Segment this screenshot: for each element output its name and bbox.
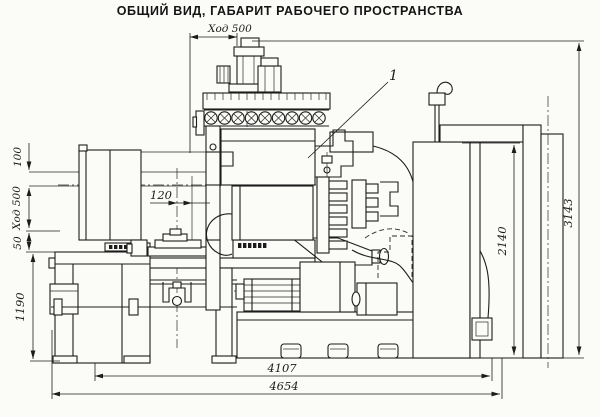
motor-unit	[236, 279, 300, 311]
callout-1-label: 1	[389, 68, 398, 84]
injection-housing	[79, 145, 141, 240]
clamp-column	[206, 126, 220, 310]
drawing-sheet: ОБЩИЙ ВИД, ГАБАРИТ РАБОЧЕГО ПРОСТРАНСТВА	[0, 0, 600, 417]
dim-2140-label: 2140	[495, 226, 509, 256]
dim-3143-label: 3143	[561, 198, 575, 227]
dim-100-label: 100	[12, 147, 24, 167]
dim-left-stroke-label: Ход 500	[11, 186, 23, 231]
dim-50-label: 50	[12, 236, 24, 250]
technical-drawing: ОБЩИЙ ВИД, ГАБАРИТ РАБОЧЕГО ПРОСТРАНСТВА	[0, 0, 600, 417]
junction-box	[330, 132, 373, 152]
dim-top-stroke-label: Ход 500	[207, 23, 252, 35]
machine-view	[49, 38, 563, 368]
header-plate	[203, 93, 330, 109]
hydraulic-manifold	[317, 152, 398, 253]
dim-4107-label: 4107	[266, 361, 297, 375]
dim-4654-label: 4654	[268, 379, 298, 393]
upper-clamp-block	[221, 129, 315, 185]
top-cylinder-assembly	[217, 38, 281, 92]
pump-box	[300, 262, 355, 312]
valve-box	[352, 283, 397, 315]
fastener-band	[204, 110, 329, 126]
dim-120-label: 120	[150, 188, 172, 202]
plate-left-bracket	[196, 111, 204, 135]
post-foot	[212, 356, 236, 363]
dim-1190-label: 1190	[13, 292, 27, 321]
page-title: ОБЩИЙ ВИД, ГАБАРИТ РАБОЧЕГО ПРОСТРАНСТВА	[117, 3, 464, 18]
platen-base	[233, 240, 315, 258]
